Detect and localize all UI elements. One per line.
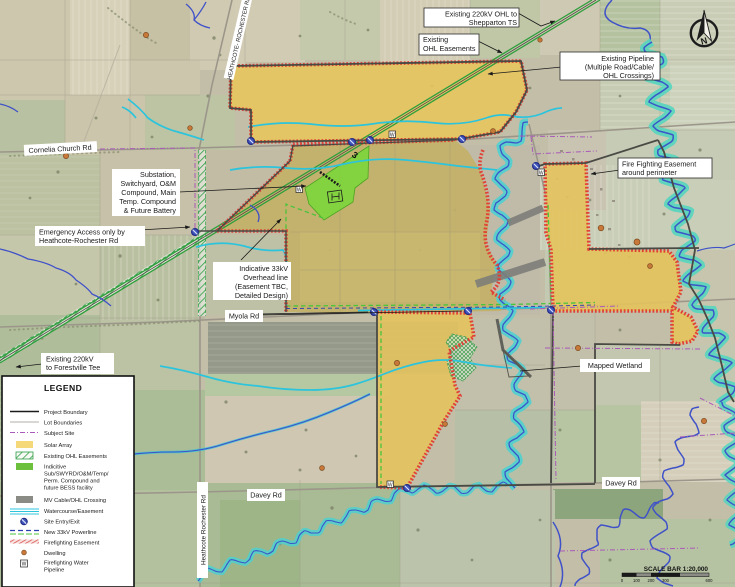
svg-text:(Easement TBC,: (Easement TBC, [235,282,288,291]
svg-text:Perm. Compound and: Perm. Compound and [44,479,100,485]
svg-text:Mapped Wetland: Mapped Wetland [588,361,642,370]
svg-text:Heathcote Rochester Rd: Heathcote Rochester Rd [200,495,207,565]
svg-text:Detailed Design): Detailed Design) [235,291,288,300]
svg-text:future BESS facility: future BESS facility [44,486,93,492]
svg-text:MV Cable/OHL Crossing: MV Cable/OHL Crossing [44,498,106,504]
svg-text:Firefighting Easement: Firefighting Easement [44,541,100,547]
svg-text:Lot Boundaries: Lot Boundaries [44,420,82,426]
svg-text:Overhead line: Overhead line [243,273,288,282]
svg-text:Indicative 33kV: Indicative 33kV [239,264,288,273]
svg-text:Firefighting Water: Firefighting Water [44,561,89,567]
svg-text:Existing OHL Easements: Existing OHL Easements [44,454,107,460]
svg-text:W: W [539,171,544,177]
svg-text:300: 300 [662,578,670,583]
svg-text:Site Entry/Exit: Site Entry/Exit [44,520,80,526]
svg-text:W: W [297,188,302,194]
svg-text:Dwelling: Dwelling [44,551,66,557]
svg-text:Davey Rd: Davey Rd [605,479,637,488]
svg-text:Subject Site: Subject Site [44,431,74,437]
svg-text:OHL Crossings): OHL Crossings) [603,71,654,80]
svg-text:W: W [388,483,393,489]
svg-text:Project Boundary: Project Boundary [44,410,88,416]
svg-text:600: 600 [706,578,714,583]
svg-text:Sub/SWYRD/O&M/Temp/: Sub/SWYRD/O&M/Temp/ [44,472,109,478]
svg-text:Davey Rd: Davey Rd [250,491,282,500]
svg-text:200: 200 [648,578,656,583]
svg-text:& Future Battery: & Future Battery [124,206,177,215]
svg-text:Myola Rd: Myola Rd [229,312,259,321]
svg-text:Switchyard, O&M: Switchyard, O&M [120,179,176,188]
svg-text:Existing: Existing [423,35,448,44]
svg-text:New 33kV Powerline: New 33kV Powerline [44,530,96,536]
svg-text:Pipeline: Pipeline [44,568,64,574]
svg-text:SCALE BAR 1:20,000: SCALE BAR 1:20,000 [644,566,709,573]
svg-text:OHL Easements: OHL Easements [423,44,476,53]
svg-text:100: 100 [633,578,641,583]
svg-text:to Forestville Tee: to Forestville Tee [46,363,100,372]
svg-text:W: W [390,133,395,139]
svg-text:Heathcote-Rochester Rd: Heathcote-Rochester Rd [39,236,118,245]
svg-text:Shepparton TS: Shepparton TS [469,18,517,27]
svg-text:Compound, Main: Compound, Main [121,188,176,197]
svg-text:LEGEND: LEGEND [44,383,82,393]
svg-text:around perimeter: around perimeter [622,168,677,177]
svg-text:Substation,: Substation, [140,170,176,179]
svg-text:Indicitive: Indicitive [44,465,66,471]
svg-text:Temp. Compound: Temp. Compound [119,197,176,206]
svg-text:Watercourse/Easement: Watercourse/Easement [44,509,104,515]
svg-text:W: W [22,561,27,567]
svg-text:Solar Array: Solar Array [44,443,72,449]
